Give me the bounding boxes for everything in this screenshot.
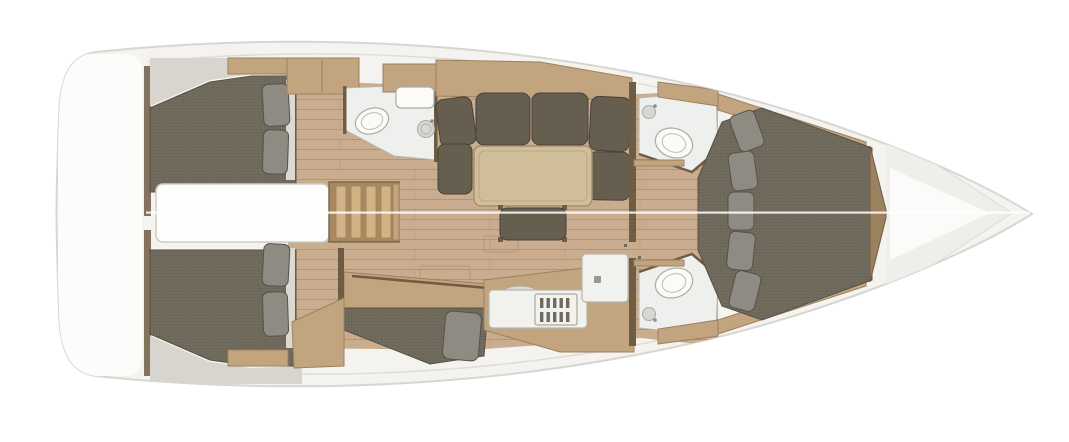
pillow [262,243,290,286]
burner-grate [540,312,543,322]
pillow [727,150,758,191]
door-handle [638,256,641,259]
pillow [262,83,290,126]
centerline-seam [146,212,1030,214]
transom-platform [58,54,151,376]
bow-locker [886,132,1012,296]
head-wall-aft [343,86,347,134]
yacht-floorplan: Top-view interior floor plan rendering o… [0,0,1069,442]
sofa-back-cushion [532,93,588,145]
sofa-corner-cushion [588,152,631,201]
forward-cabin [698,94,886,334]
burner-grate [547,312,550,322]
vanity-sink [396,87,434,108]
door-threshold [634,260,684,266]
burner-grate [566,312,569,322]
transom-deck [58,54,142,376]
door-handle [624,244,627,247]
faucet [653,318,657,322]
sofa-back-cushion [476,93,530,145]
galley-worktop [489,290,587,328]
burner-grate [560,312,563,322]
interior [58,54,1030,384]
shelf-locker [228,58,288,74]
shelf-locker [228,350,288,366]
door-threshold [634,160,684,166]
pillow [262,130,289,175]
burner-grate [560,298,563,308]
salon-table [474,146,592,206]
pillow [728,192,754,230]
sofa-back-cushion [435,96,477,149]
sofa-chaise-seat [438,144,472,194]
burner-grate [553,298,556,308]
sofa-back-cushion [589,96,632,152]
pillow [726,231,756,272]
worktop-drain [594,276,601,283]
berth-texture [698,108,872,320]
faucet [430,119,434,123]
burner-grate [547,298,550,308]
burner-grate [540,298,543,308]
bulkhead-starboard-segment [629,258,636,346]
settee-pillow [442,311,482,362]
burner-grate [566,298,569,308]
salon-sideboard [436,60,632,100]
faucet [653,104,657,108]
pillow [262,292,289,337]
washbasin [643,308,656,321]
washbasin [643,106,656,119]
floorplan-svg: Top-view interior floor plan rendering o… [0,0,1069,442]
washbasin [418,121,435,138]
galley-second-worktop [582,254,628,302]
burner-grate [553,312,556,322]
